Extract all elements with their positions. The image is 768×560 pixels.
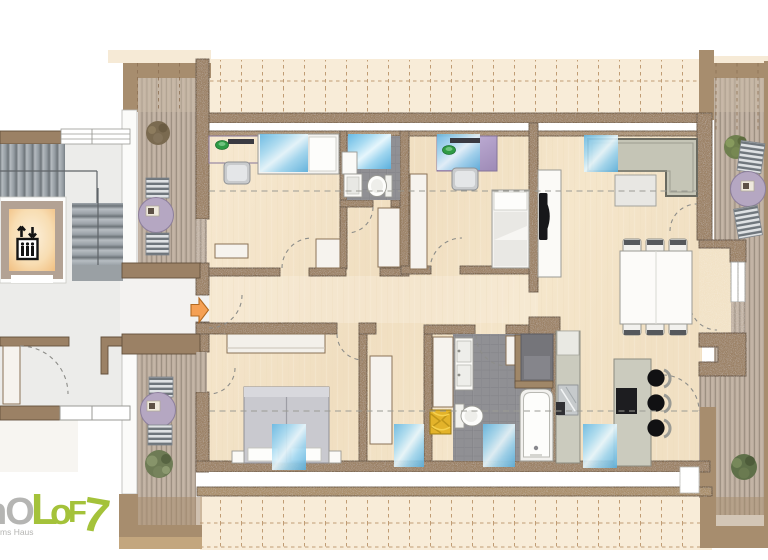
- svg-text:ms Haus: ms Haus: [0, 527, 34, 537]
